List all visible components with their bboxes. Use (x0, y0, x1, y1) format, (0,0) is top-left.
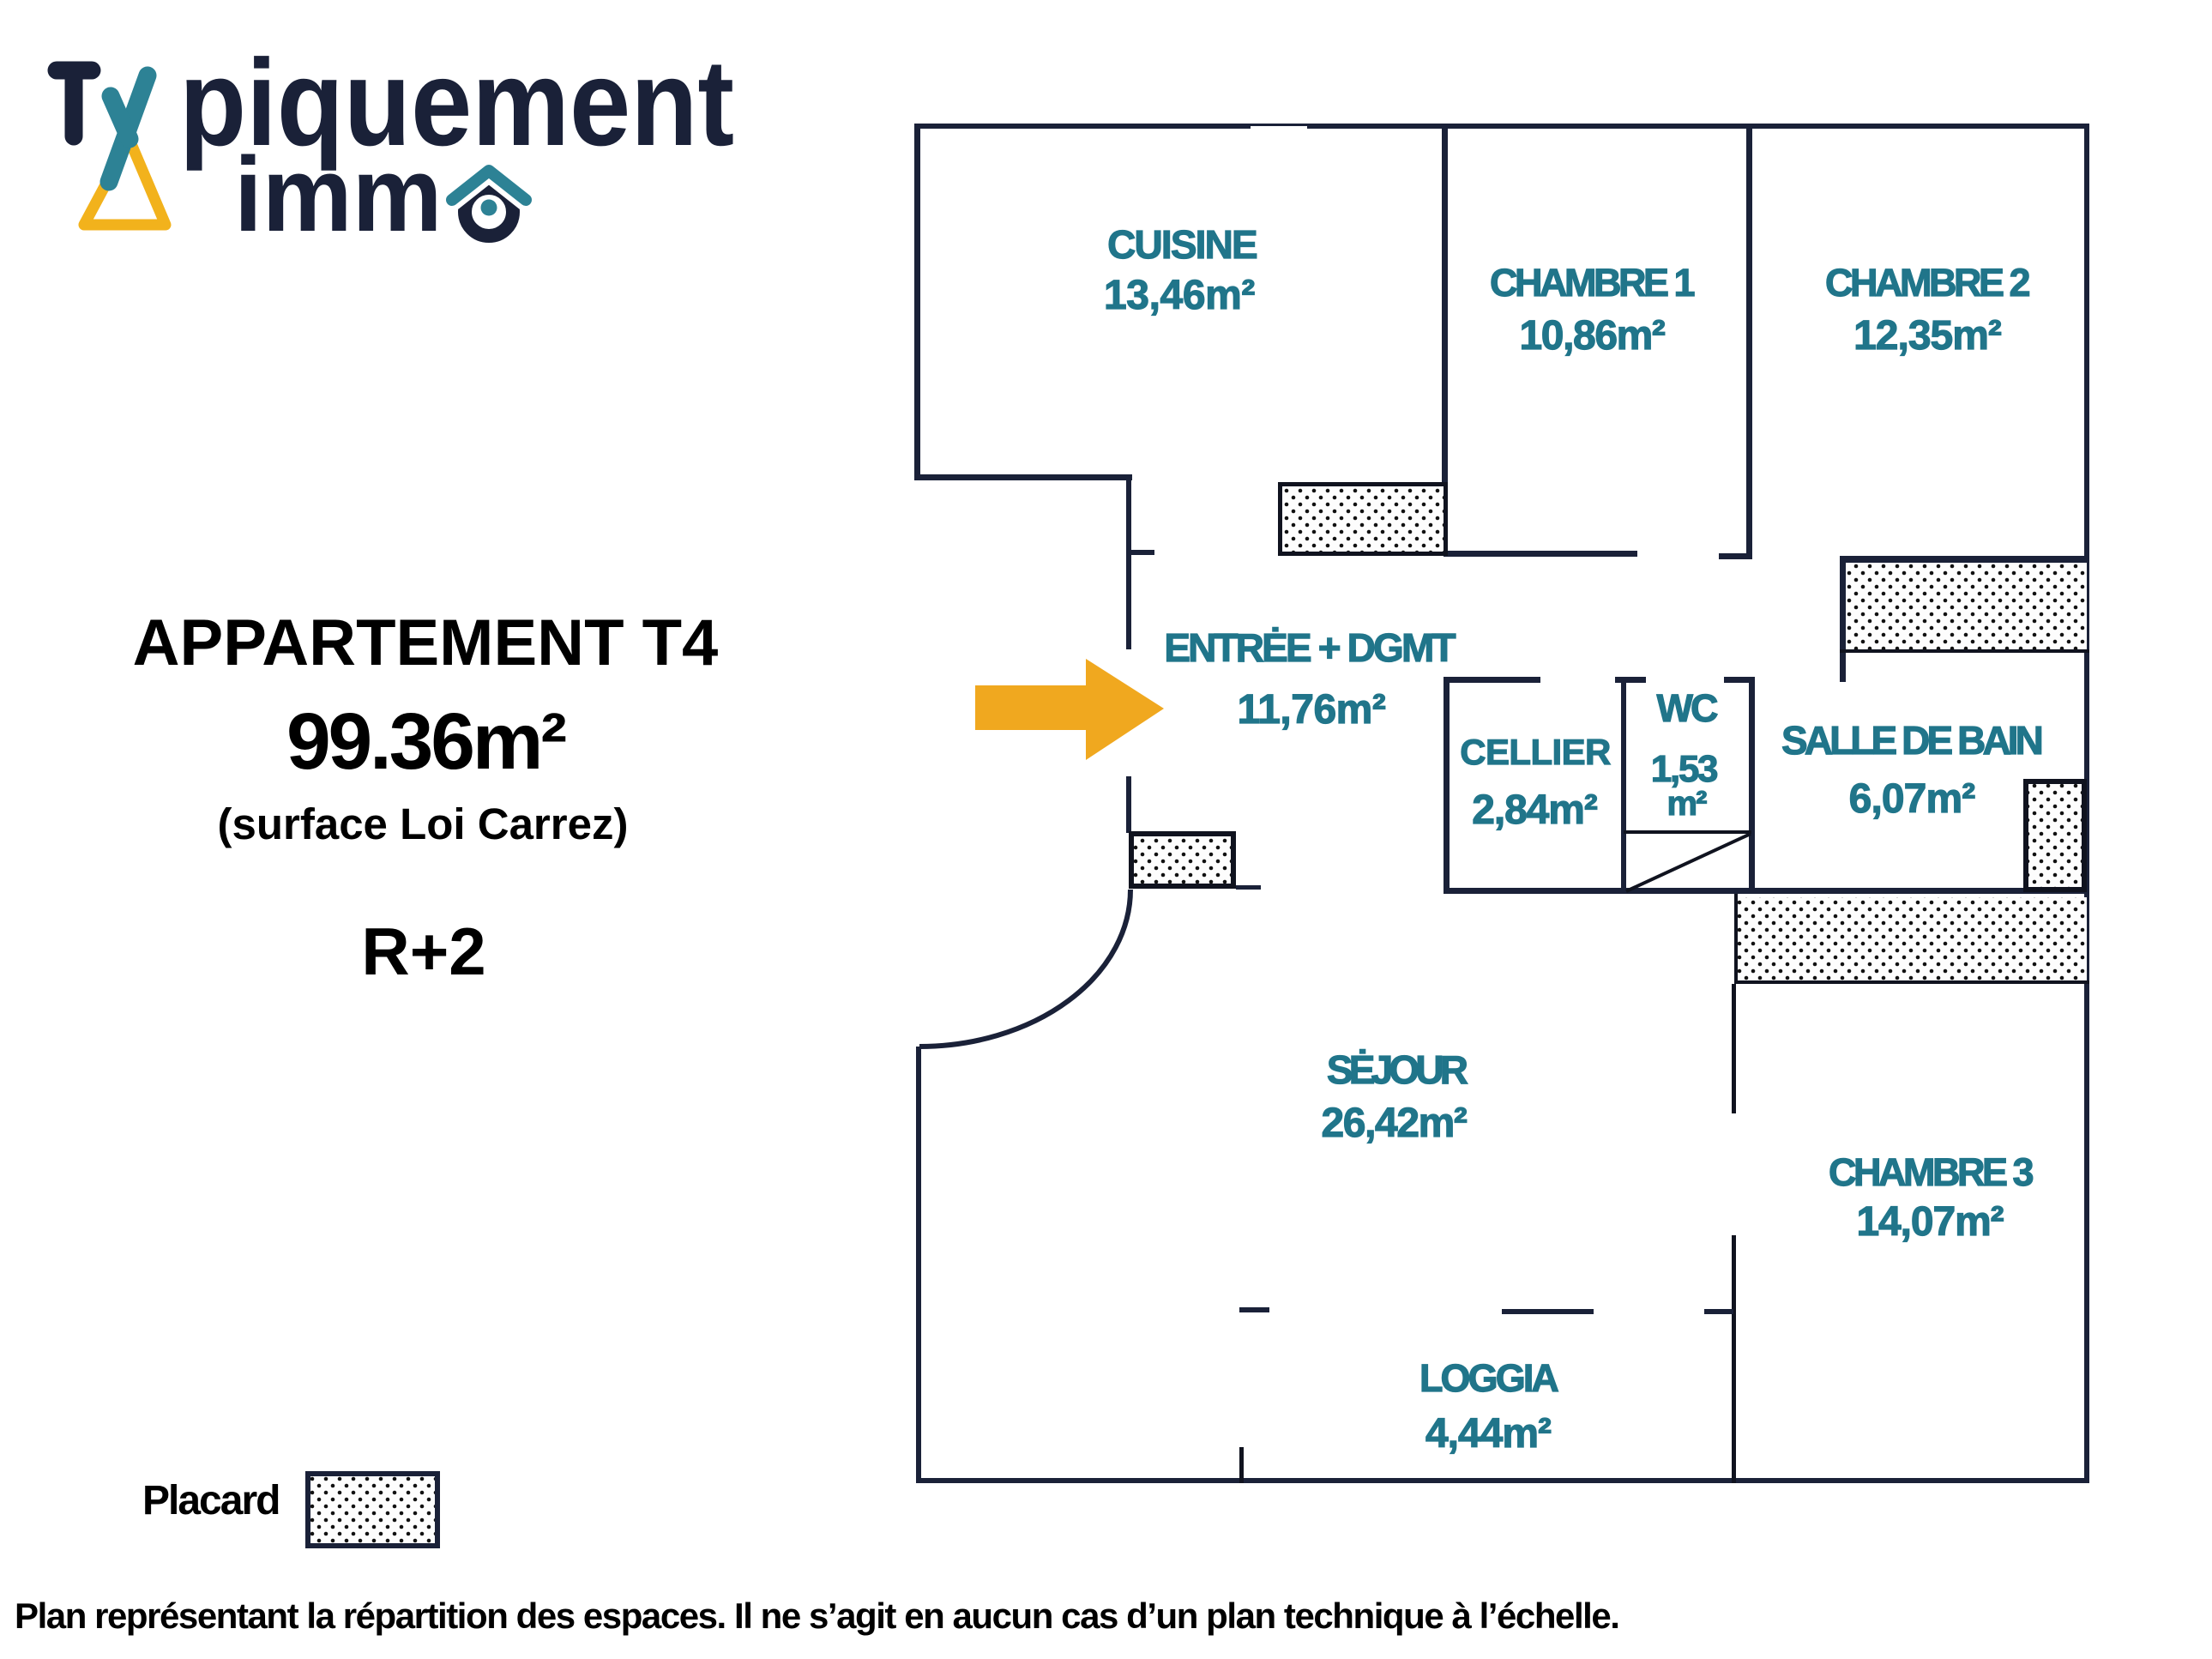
svg-text:imm: imm (234, 134, 443, 253)
svg-text:APPARTEMENT T4: APPARTEMENT T4 (133, 606, 719, 679)
svg-text:m²: m² (1667, 785, 1708, 823)
svg-text:WC: WC (1657, 686, 1718, 730)
svg-text:11,76m²: 11,76m² (1238, 687, 1386, 733)
svg-text:13,46m²: 13,46m² (1104, 273, 1255, 318)
svg-text:CHAMBRE 1: CHAMBRE 1 (1490, 261, 1694, 305)
svg-text:10,86m²: 10,86m² (1520, 313, 1665, 359)
svg-text:6,07m²: 6,07m² (1849, 776, 1975, 822)
svg-text:2,84m²: 2,84m² (1472, 787, 1597, 833)
svg-text:26,42m²: 26,42m² (1322, 1101, 1467, 1146)
svg-text:Placard: Placard (142, 1478, 279, 1523)
svg-text:CHAMBRE 3: CHAMBRE 3 (1829, 1150, 2033, 1194)
svg-text:CHAMBRE 2: CHAMBRE 2 (1825, 261, 2029, 305)
svg-text:99.36m²: 99.36m² (286, 697, 566, 786)
svg-text:ENTRĖE + DGMT: ENTRĖE + DGMT (1164, 625, 1456, 670)
svg-text:14,07m²: 14,07m² (1856, 1199, 2003, 1245)
svg-text:R+2: R+2 (361, 914, 485, 989)
svg-text:1,53: 1,53 (1651, 748, 1717, 790)
svg-text:SĖJOUR: SĖJOUR (1327, 1047, 1468, 1092)
svg-text:LOGGIA: LOGGIA (1419, 1356, 1558, 1400)
svg-text:SALLE DE BAIN: SALLE DE BAIN (1781, 718, 2042, 763)
svg-text:12,35m²: 12,35m² (1853, 313, 2001, 359)
svg-text:Plan représentant la répartiti: Plan représentant la répartition des esp… (15, 1596, 1619, 1636)
svg-text:CUISINE: CUISINE (1107, 222, 1257, 267)
svg-text:4,44m²: 4,44m² (1425, 1411, 1551, 1457)
svg-text:(surface Loi Carrez): (surface Loi Carrez) (218, 799, 629, 848)
svg-text:CELLIER: CELLIER (1460, 732, 1611, 772)
